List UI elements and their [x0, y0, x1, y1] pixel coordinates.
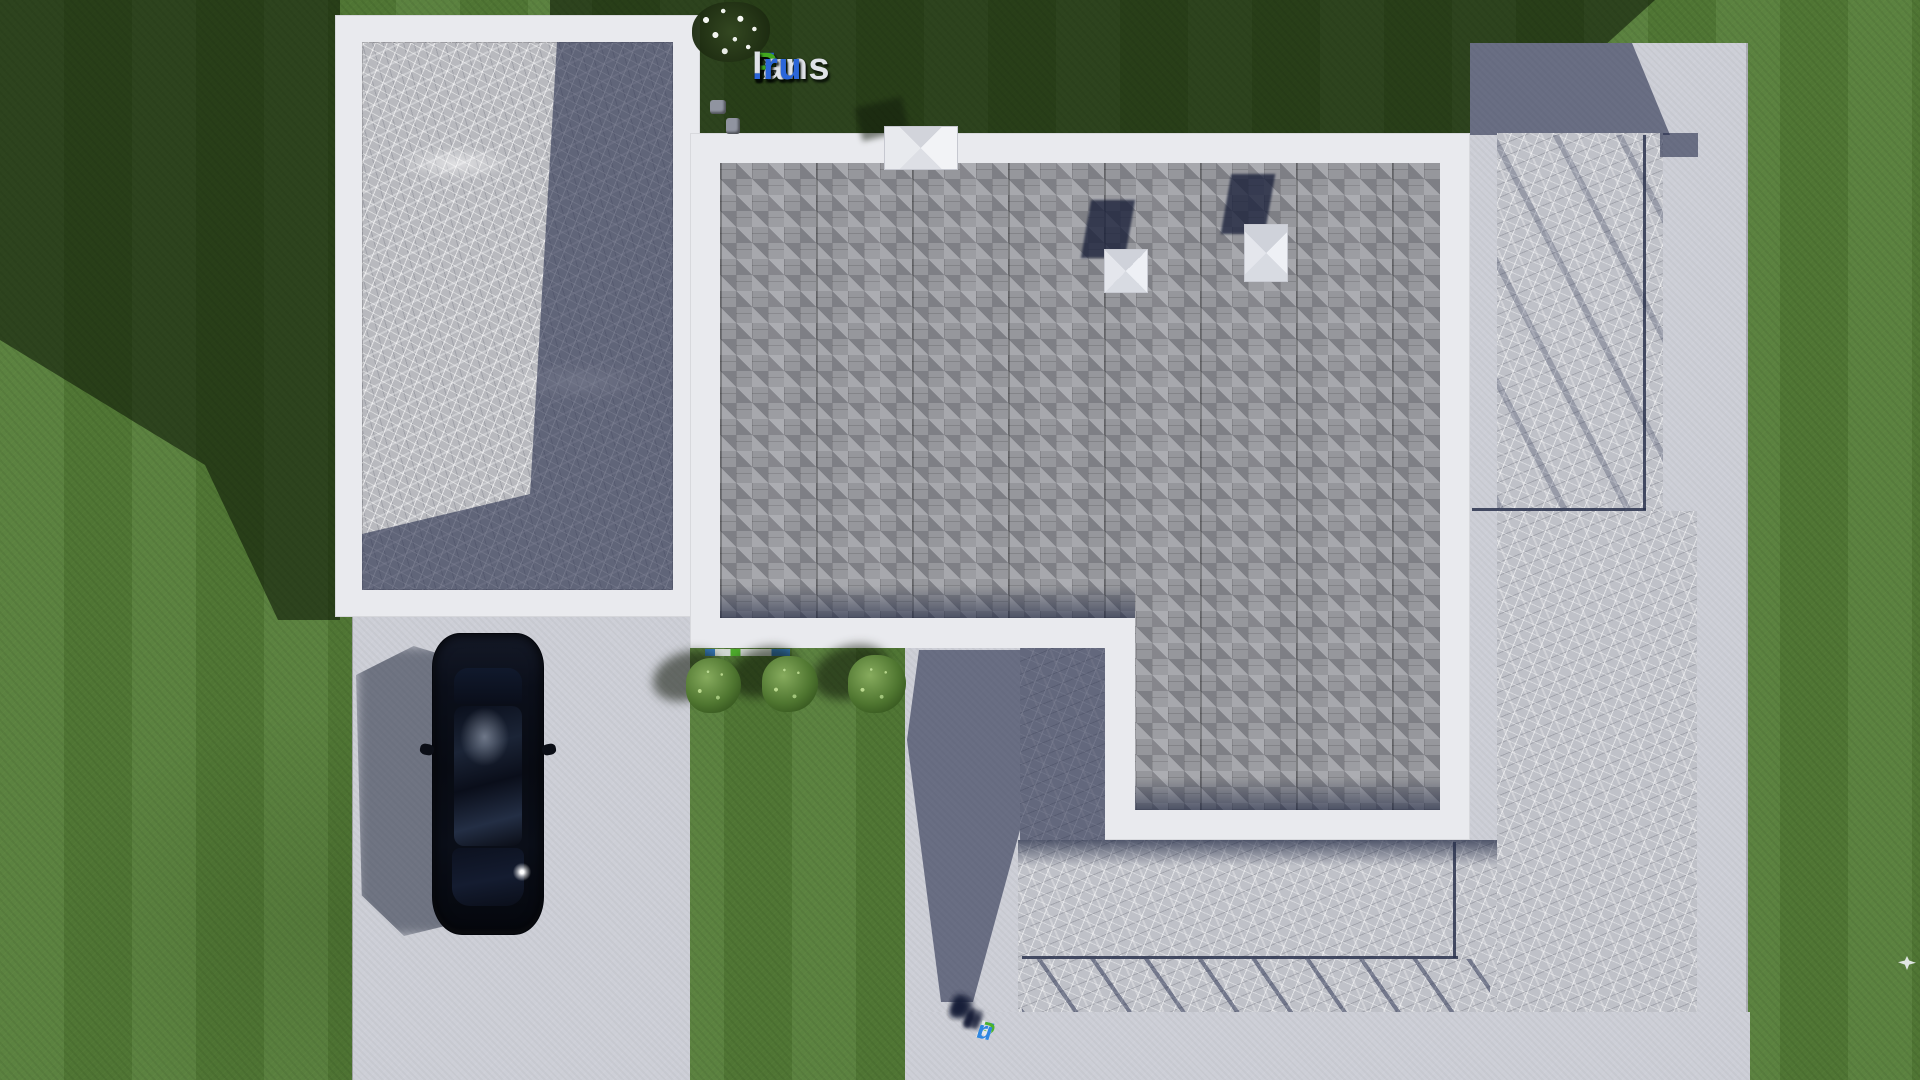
car-roof-glass: [454, 706, 522, 846]
car-rear-window: [454, 668, 522, 704]
skylight-2: [1244, 224, 1288, 282]
car-specular-highlight: [512, 862, 532, 882]
wall-vent-1: [710, 100, 726, 114]
railing-shadow-streaks-upper: [1497, 135, 1663, 508]
terrace-railing-vertical: [1453, 842, 1456, 958]
balcony-stone-floor-lower: [1497, 511, 1697, 1020]
skylight-1: [1104, 249, 1148, 293]
chimney-vent: [884, 126, 958, 170]
step-shadow-notch: [1660, 133, 1698, 157]
parapet-shadow-on-roof-left-wing: [720, 586, 1135, 618]
aerial-house-render: FixPlans.ru FixPlans.ru: [0, 0, 1920, 1080]
wall-vent-2: [726, 118, 740, 134]
terrace-railing-post-shadows: [1022, 959, 1490, 1015]
parapet-shadow-on-roof-bottom-wing: [1135, 778, 1440, 810]
parapet-shadow-on-terrace: [1018, 840, 1497, 866]
glass-railing-line-vertical: [1643, 135, 1646, 510]
watermark-part: .ru: [752, 46, 802, 89]
bottom-concrete-apron: [905, 1012, 1750, 1080]
stone-strip-shadow: [1020, 648, 1105, 842]
